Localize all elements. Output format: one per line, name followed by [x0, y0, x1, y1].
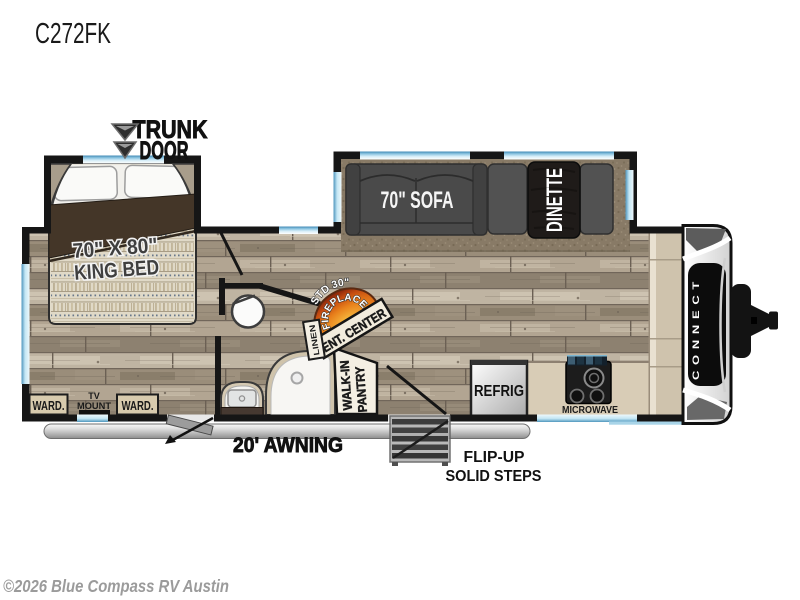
svg-text:C272FK: C272FK	[35, 18, 111, 50]
svg-text:SOLID STEPS: SOLID STEPS	[446, 468, 542, 485]
svg-text:MICROWAVE: MICROWAVE	[562, 405, 618, 416]
svg-text:WARD.: WARD.	[122, 399, 154, 413]
svg-text:REFRIG: REFRIG	[474, 383, 524, 400]
svg-text:WARD.: WARD.	[33, 399, 65, 413]
svg-text:MOUNT: MOUNT	[77, 401, 112, 411]
svg-text:FLIP-UP: FLIP-UP	[464, 449, 525, 466]
svg-text:TV: TV	[88, 391, 100, 401]
svg-text:CONNECT: CONNECT	[691, 276, 701, 380]
svg-text:DOOR: DOOR	[140, 137, 189, 165]
svg-text:©2026 Blue Compass RV Austin: ©2026 Blue Compass RV Austin	[3, 576, 229, 596]
svg-text:DINETTE: DINETTE	[542, 168, 567, 232]
svg-text:70" SOFA: 70" SOFA	[381, 187, 454, 214]
svg-text:20' AWNING: 20' AWNING	[233, 434, 343, 457]
